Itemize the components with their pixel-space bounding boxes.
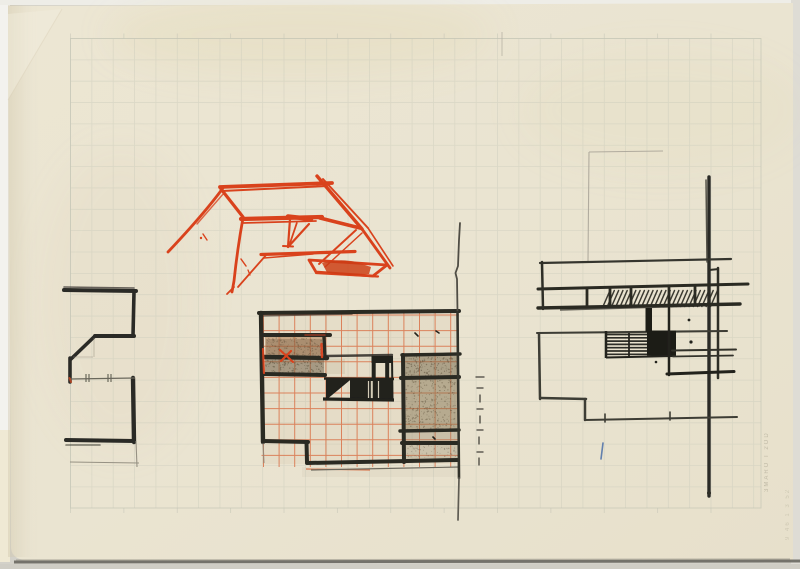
svg-text:9 46 1 3 52: 9 46 1 3 52 [785,488,791,540]
svg-text:3MARO I 2OD: 3MARO I 2OD [764,431,770,492]
